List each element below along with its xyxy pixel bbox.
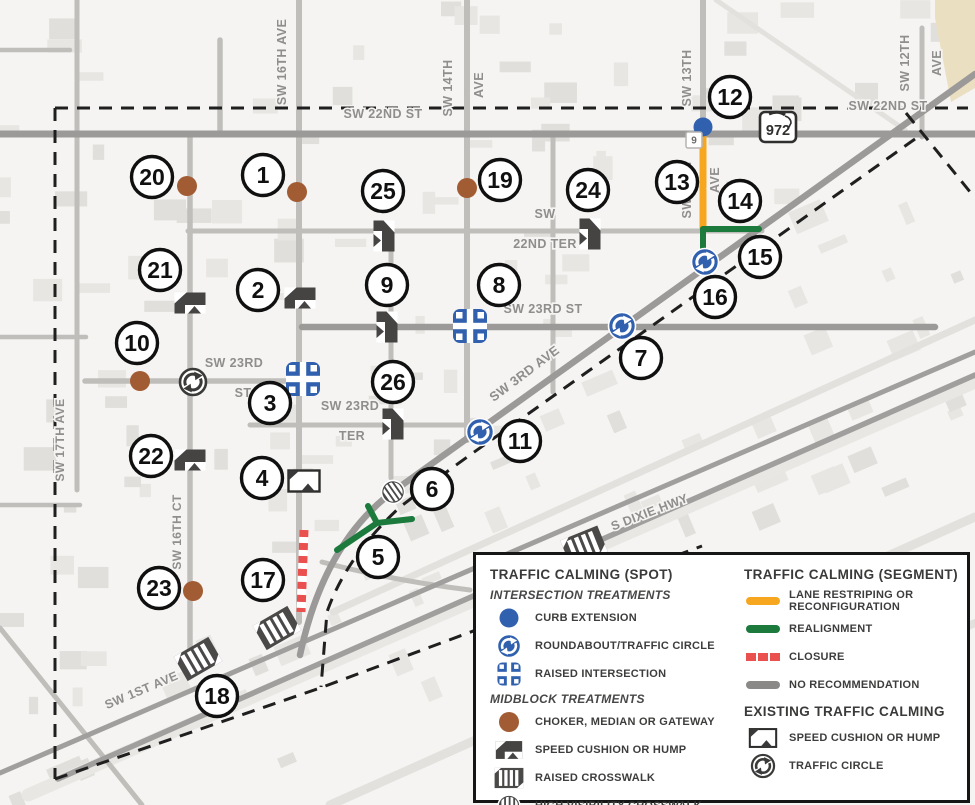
choker-legend-icon	[490, 709, 528, 735]
curb-extension-icon	[500, 609, 519, 628]
svg-text:13: 13	[664, 169, 690, 195]
speed-cushion-icon	[285, 288, 316, 309]
raised-intersection-icon	[286, 362, 320, 396]
svg-text:1: 1	[257, 162, 270, 188]
marker-13: 13	[657, 162, 698, 203]
route-shield-small: 9	[686, 132, 702, 148]
legend-item-label: ROUNDABOUT/TRAFFIC CIRCLE	[535, 640, 715, 652]
marker-5: 5	[358, 537, 399, 578]
svg-text:5: 5	[372, 544, 385, 570]
svg-text:2: 2	[252, 277, 265, 303]
marker-26: 26	[373, 362, 414, 403]
raised-intersection-icon	[497, 662, 520, 685]
legend-item-speed-cushion-existing: SPEED CUSHION OR HUMP	[744, 725, 961, 751]
marker-10: 10	[117, 323, 158, 364]
street-label: AVE	[472, 72, 486, 98]
svg-text:21: 21	[147, 257, 173, 283]
route-shield-972: 972	[760, 112, 796, 142]
line-green-legend-icon	[744, 616, 782, 642]
svg-text:22: 22	[138, 443, 164, 469]
line-gray-legend-icon	[744, 672, 782, 698]
marker-18: 18	[197, 676, 238, 717]
street-label: SW 22ND ST	[343, 107, 422, 121]
svg-text:4: 4	[256, 465, 269, 491]
choker-icon	[287, 182, 307, 202]
svg-text:15: 15	[747, 244, 773, 270]
speed-cushion-icon	[383, 409, 404, 440]
svg-text:26: 26	[380, 369, 406, 395]
svg-text:18: 18	[204, 683, 230, 709]
legend-section-heading: INTERSECTION TREATMENTS	[490, 588, 742, 602]
roundabout-legend-icon	[490, 633, 528, 659]
legend-item-label: HIGH VISIBILITY CROSSWALK	[535, 800, 702, 805]
marker-1: 1	[243, 155, 284, 196]
street-label: SW 13TH	[680, 50, 694, 107]
legend-item-traffic-circle-existing: TRAFFIC CIRCLE	[744, 753, 961, 779]
roundabout-icon	[498, 635, 521, 658]
street-label: SW 23RD	[321, 399, 379, 413]
legend-item-choker: CHOKER, MEDIAN OR GATEWAY	[490, 709, 742, 735]
marker-25: 25	[363, 171, 404, 212]
choker-icon	[183, 581, 203, 601]
legend-item-label: RAISED INTERSECTION	[535, 668, 666, 680]
svg-text:25: 25	[370, 178, 396, 204]
roundabout-icon	[467, 419, 494, 446]
marker-23: 23	[139, 568, 180, 609]
traffic-calming-map: SW 22ND STSW 22ND STSW 16TH AVESW 14THAV…	[0, 0, 975, 805]
street-label: SW 23RD ST	[503, 302, 582, 316]
choker-icon	[499, 712, 519, 732]
street-label: SW 16TH AVE	[275, 19, 289, 105]
svg-text:19: 19	[487, 167, 513, 193]
marker-22: 22	[131, 436, 172, 477]
high-visibility-crosswalk-icon	[498, 795, 520, 805]
street-label: SW 17TH AVE	[53, 398, 67, 481]
legend-item-label: CURB EXTENSION	[535, 612, 637, 624]
choker-icon	[457, 178, 477, 198]
marker-19: 19	[480, 160, 521, 201]
legend-item-label: SPEED CUSHION OR HUMP	[789, 732, 940, 744]
street-label: SW 16TH CT	[170, 494, 184, 570]
traffic-circle-existing-icon	[180, 369, 206, 395]
marker-16: 16	[695, 277, 736, 318]
marker-20: 20	[132, 157, 173, 198]
svg-text:972: 972	[766, 123, 790, 139]
line-orange-legend-icon	[744, 588, 782, 614]
choker-icon	[130, 371, 150, 391]
street-label: SW 22ND ST	[848, 99, 927, 113]
street-label: SW 14TH	[441, 60, 455, 117]
marker-2: 2	[238, 270, 279, 311]
legend-item-line-green: REALIGNMENT	[744, 616, 961, 642]
legend-item-raised-crosswalk: RAISED CROSSWALK	[490, 765, 742, 791]
traffic-circle-existing-legend-icon	[744, 753, 782, 779]
legend-item-raised-intersection: RAISED INTERSECTION	[490, 661, 742, 687]
legend-item-line-red-dashed: CLOSURE	[744, 644, 961, 670]
speed-cushion-legend-icon	[490, 737, 528, 763]
curb-extension-legend-icon	[490, 605, 528, 631]
legend-panel: TRAFFIC CALMING (SPOT) INTERSECTION TREA…	[473, 552, 970, 803]
svg-text:12: 12	[717, 84, 743, 110]
legend-item-label: TRAFFIC CIRCLE	[789, 760, 884, 772]
raised-intersection-legend-icon	[490, 661, 528, 687]
svg-text:9: 9	[691, 136, 697, 147]
marker-24: 24	[568, 170, 609, 211]
legend-existing-items: SPEED CUSHION OR HUMPTRAFFIC CIRCLE	[744, 725, 961, 779]
marker-17: 17	[243, 560, 284, 601]
svg-text:3: 3	[264, 390, 277, 416]
legend-section-heading: MIDBLOCK TREATMENTS	[490, 692, 742, 706]
traffic-circle-existing-icon	[752, 755, 774, 777]
legend-item-curb-extension: CURB EXTENSION	[490, 605, 742, 631]
choker-icon	[177, 176, 197, 196]
street-label: SW 23RD	[205, 356, 263, 370]
marker-11: 11	[500, 421, 541, 462]
svg-text:6: 6	[426, 476, 439, 502]
svg-text:23: 23	[146, 575, 172, 601]
marker-12: 12	[710, 77, 751, 118]
speed-cushion-icon	[496, 741, 522, 759]
legend-spot-title: TRAFFIC CALMING (SPOT)	[490, 567, 742, 582]
legend-segment-items: LANE RESTRIPING OR RECONFIGURATIONREALIG…	[744, 588, 961, 698]
legend-item-high-visibility-crosswalk: HIGH VISIBILITY CROSSWALK	[490, 793, 742, 805]
raised-intersection-icon	[453, 309, 487, 343]
legend-item-roundabout: ROUNDABOUT/TRAFFIC CIRCLE	[490, 633, 742, 659]
speed-cushion-icon	[374, 221, 395, 252]
legend-item-label: REALIGNMENT	[789, 623, 872, 635]
legend-item-speed-cushion: SPEED CUSHION OR HUMP	[490, 737, 742, 763]
raised-crosswalk-legend-icon	[490, 765, 528, 791]
legend-segment-title: TRAFFIC CALMING (SEGMENT)	[744, 567, 961, 582]
roundabout-icon	[609, 313, 636, 340]
marker-6: 6	[412, 469, 453, 510]
legend-item-label: LANE RESTRIPING OR RECONFIGURATION	[789, 589, 961, 614]
svg-text:20: 20	[139, 164, 165, 190]
svg-text:11: 11	[508, 428, 533, 454]
speed-cushion-existing-icon	[750, 729, 776, 747]
raised-crosswalk-icon	[495, 768, 524, 788]
svg-text:14: 14	[727, 188, 753, 214]
roundabout-icon	[692, 249, 719, 276]
street-label: SW	[535, 207, 556, 221]
legend-item-line-gray: NO RECOMMENDATION	[744, 672, 961, 698]
marker-15: 15	[740, 237, 781, 278]
legend-item-label: NO RECOMMENDATION	[789, 679, 920, 691]
marker-4: 4	[242, 458, 283, 499]
speed-cushion-icon	[175, 293, 206, 314]
legend-item-label: SPEED CUSHION OR HUMP	[535, 744, 686, 756]
marker-14: 14	[720, 181, 761, 222]
svg-text:9: 9	[381, 272, 394, 298]
street-label: TER	[339, 429, 365, 443]
legend-existing-title: EXISTING TRAFFIC CALMING	[744, 704, 961, 719]
svg-text:17: 17	[250, 567, 276, 593]
legend-item-line-orange: LANE RESTRIPING OR RECONFIGURATION	[744, 588, 961, 614]
street-label: SW 12TH	[898, 35, 912, 92]
marker-3: 3	[250, 383, 291, 424]
legend-segment-column: TRAFFIC CALMING (SEGMENT) LANE RESTRIPIN…	[744, 565, 961, 794]
street-label: AVE	[930, 50, 944, 76]
line-red-dashed-legend-icon	[744, 644, 782, 670]
marker-7: 7	[621, 338, 662, 379]
marker-8: 8	[479, 265, 520, 306]
street-label: AVE	[708, 167, 722, 193]
legend-item-label: RAISED CROSSWALK	[535, 772, 655, 784]
legend-spot-column: TRAFFIC CALMING (SPOT) INTERSECTION TREA…	[490, 565, 742, 794]
legend-item-label: CLOSURE	[789, 651, 845, 663]
marker-9: 9	[367, 265, 408, 306]
high-visibility-crosswalk-legend-icon	[490, 793, 528, 805]
svg-text:7: 7	[635, 345, 648, 371]
speed-cushion-icon	[580, 219, 601, 250]
legend-spot-sections: INTERSECTION TREATMENTSCURB EXTENSIONROU…	[490, 588, 742, 805]
svg-text:8: 8	[493, 272, 506, 298]
speed-cushion-existing-icon	[289, 471, 320, 492]
speed-cushion-existing-legend-icon	[744, 725, 782, 751]
legend-item-label: CHOKER, MEDIAN OR GATEWAY	[535, 716, 715, 728]
svg-text:10: 10	[124, 330, 150, 356]
svg-text:16: 16	[702, 284, 728, 310]
speed-cushion-icon	[175, 450, 206, 471]
svg-text:24: 24	[575, 177, 601, 203]
marker-21: 21	[140, 250, 181, 291]
street-label: 22ND TER	[513, 237, 577, 251]
speed-cushion-icon	[377, 312, 398, 343]
